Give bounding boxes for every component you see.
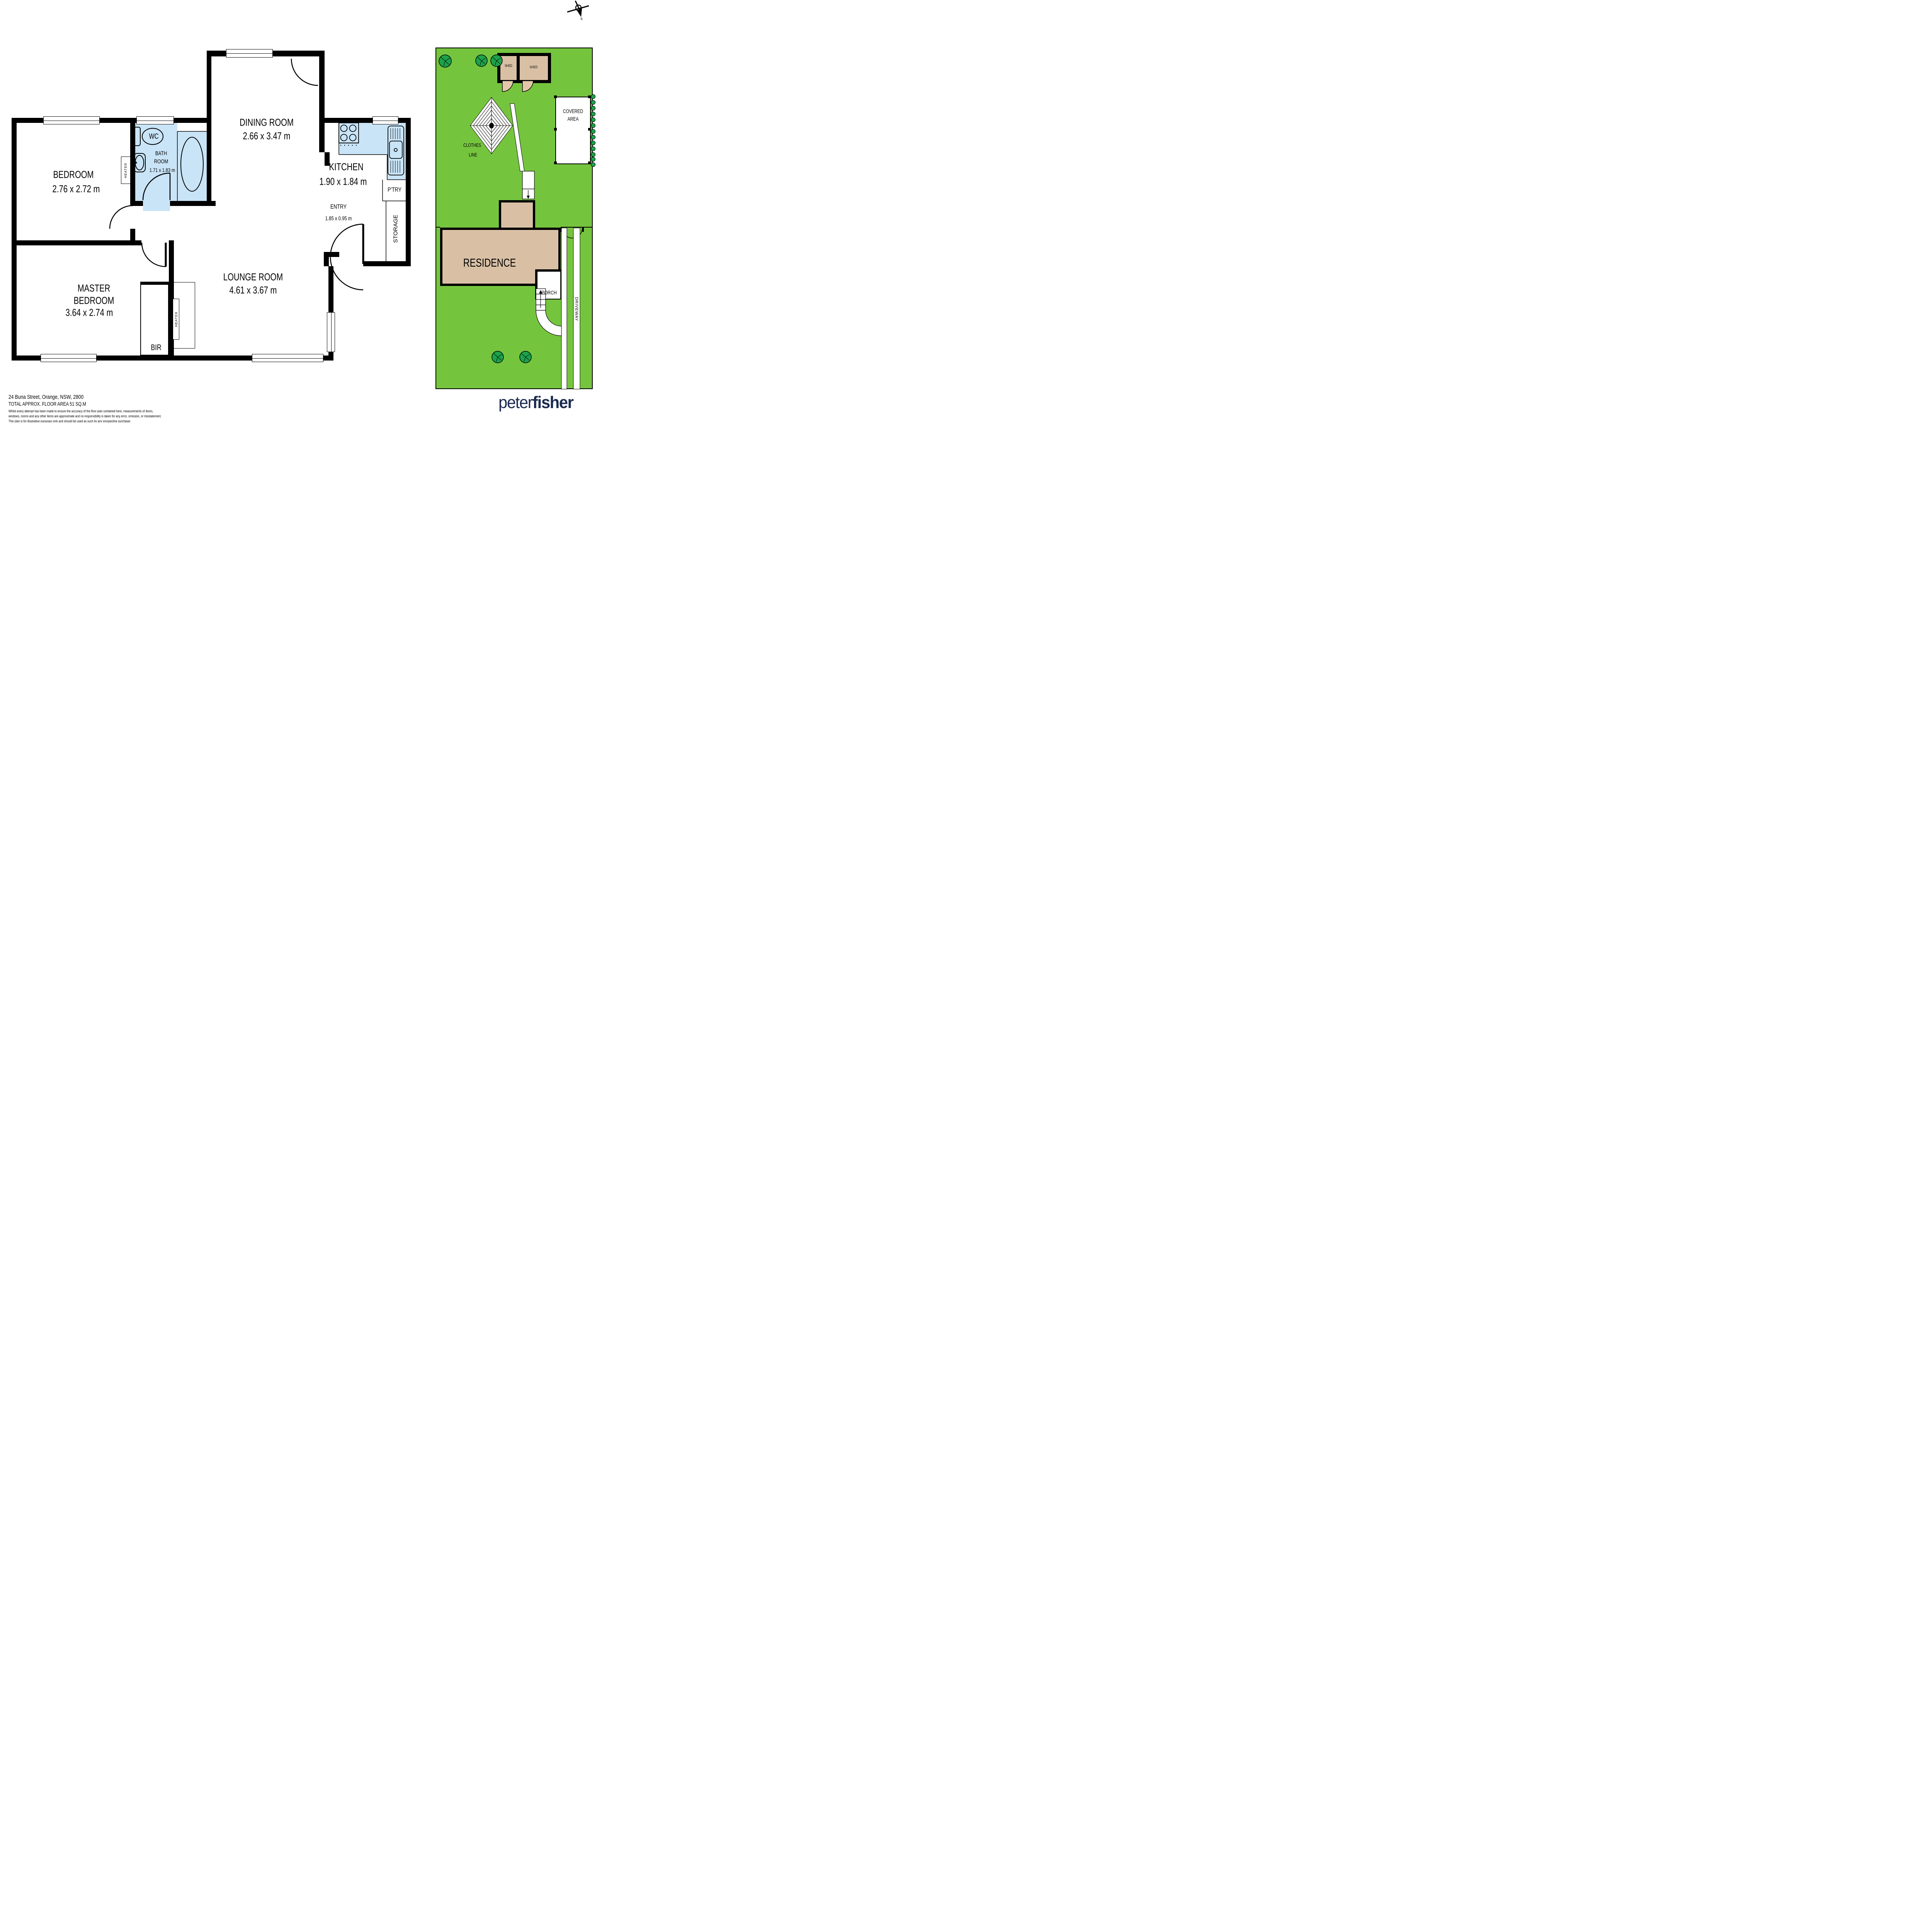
trees [439,55,531,363]
tub-dividers [177,131,207,201]
fixture-label-heater-hall: HEATER [124,163,128,178]
site-label-clothes-2: LINE [469,152,477,158]
room-label-entry: ENTRY [330,204,347,211]
window [327,312,335,352]
fixture-label-wc: WC [149,133,159,141]
compass-icon [567,1,589,17]
wall [319,51,325,152]
wall [12,118,17,361]
window [252,354,323,362]
covered-area-posts [554,95,591,164]
site-label-driveway: DRIVEWAY [574,297,579,321]
room-label-bathroom-2: ROOM [154,158,168,165]
fixture-label-heater-lounge: HEATER [174,311,178,327]
window [136,116,174,124]
porch-curve-path [536,310,561,336]
agency-logo: peterfisher [498,393,573,412]
wc-fixture [134,127,163,146]
site-label-shed-2: SHED [530,65,538,70]
site-label-shed-1: SHED [505,64,512,68]
room-label-master-2: BEDROOM [74,295,114,307]
logo-fisher: fisher [532,393,573,412]
tree-icon [439,55,451,67]
room-dims-master: 3.64 x 2.74 m [66,307,113,319]
hedge-column [591,95,595,167]
tree-icon [491,55,502,66]
bath-tub [181,137,203,191]
room-dims-dining: 2.66 x 3.47 m [243,130,291,142]
window [41,354,97,362]
compass-north-label: N [580,17,582,21]
window [372,116,398,124]
room-label-pantry: P’TRY [388,187,401,194]
wall [406,118,411,266]
room-label-kitchen: KITCHEN [329,161,363,173]
site-label-clothes-1: CLOTHES [463,143,481,148]
room-dims-lounge: 4.61 x 3.67 m [230,284,277,296]
wall [12,118,211,123]
site-label-residence: RESIDENCE [463,257,516,270]
stove-fixture [339,123,359,146]
room-dims-entry: 1.85 x 0.95 m [325,216,352,222]
wall [170,201,216,206]
room-dims-bedroom: 2.76 x 2.72 m [53,183,100,195]
room-label-dining: DINING ROOM [240,117,294,129]
tree-icon [520,351,531,363]
footer-disclaimer-3: This plan is for illustrative purposes o… [9,419,131,422]
footer-floor-area: TOTAL APPROX. FLOOR AREA 51 SQ.M [9,401,86,407]
room-dims-kitchen: 1.90 x 1.84 m [320,176,367,188]
floor-plan-page: BEDROOM 2.76 x 2.72 m WC BATH ROOM 1.71 … [0,0,597,422]
footer-address: 24 Buna Street, Orange, NSW, 2800 [9,394,83,400]
footer-disclaimer-2: windows, rooms and any other items are a… [9,414,162,418]
room-dims-bathroom: 1.71 x 1.83 m [150,167,175,173]
wall [363,261,411,266]
shed-door-swings [502,81,533,92]
fixture-label-bir: BIR [151,343,161,352]
wall [130,118,135,205]
room-label-bedroom: BEDROOM [53,169,94,181]
footer-disclaimer-1: Whilst every attempt has been made to en… [9,409,153,413]
room-label-bathroom-1: BATH [155,150,167,157]
logo-peter: peter [498,393,532,412]
site-label-porch: PORCH [541,289,556,296]
tree-icon [492,351,503,363]
room-label-master-1: MASTER [78,282,111,294]
walkway-strip [561,228,567,389]
room-label-storage: STORAGE [393,214,399,243]
wall [17,240,141,245]
wall [324,252,329,266]
wall [207,51,211,206]
basin-fixture [134,153,145,172]
window [226,49,273,58]
site-label-covered-2: AREA [568,116,579,122]
room-label-lounge: LOUNGE ROOM [223,271,283,283]
kitchen-sink-fixture [388,126,404,175]
site-label-covered-1: COVERED [563,109,583,114]
window [43,116,100,124]
tree-icon [476,55,487,66]
garden-path [510,104,524,171]
